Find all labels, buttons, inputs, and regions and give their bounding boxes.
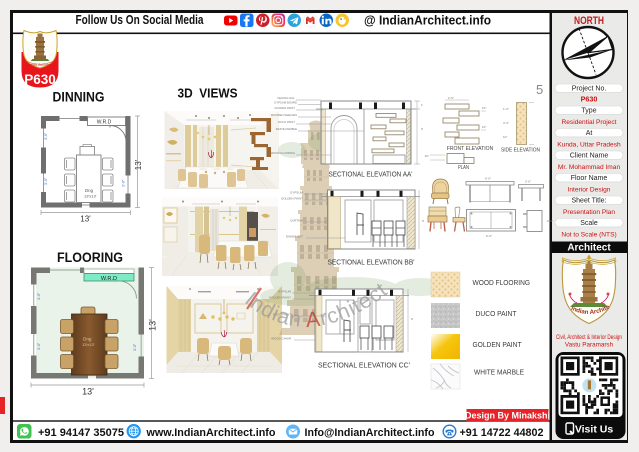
svg-text:NORTH: NORTH (574, 15, 604, 27)
svg-text:DUCO PAINT: DUCO PAINT (278, 120, 295, 124)
svg-text:WOOD CHAIR: WOOD CHAIR (271, 337, 292, 341)
svg-text:10": 10" (503, 135, 507, 139)
svg-text:PLAN: PLAN (458, 165, 469, 171)
svg-text:Indian Architect: Indian Architect (26, 62, 54, 67)
svg-text:CURTAIN: CURTAIN (290, 219, 303, 223)
svg-text:2'-6": 2'-6" (448, 96, 454, 100)
svg-text:Client Name: Client Name (570, 153, 609, 160)
svg-text:3'-0": 3'-0" (44, 132, 48, 140)
svg-text:2'-6": 2'-6" (547, 219, 553, 223)
svg-text:@ IndianArchitect.info: @ IndianArchitect.info (364, 14, 491, 28)
svg-text:Scale: Scale (580, 220, 598, 227)
svg-text:Civil, Architect & Interior De: Civil, Architect & Interior Design (556, 334, 622, 341)
svg-text:P630: P630 (24, 72, 56, 87)
svg-text:GYPSUM: GYPSUM (278, 290, 292, 294)
svg-text:W.R.D: W.R.D (101, 276, 117, 282)
svg-text:WHITE MARBLE: WHITE MARBLE (276, 127, 297, 131)
svg-text:SECTIONAL ELEVATION AA': SECTIONAL ELEVATION AA' (329, 170, 413, 179)
svg-text:GOLDEN PAINT: GOLDEN PAINT (281, 197, 303, 201)
svg-text:Follow Us On Social Media: Follow Us On Social Media (76, 13, 205, 27)
svg-text:DINING SET: DINING SET (286, 235, 303, 239)
svg-text:Design By Minakshi: Design By Minakshi (465, 410, 550, 420)
svg-text:3'-0": 3'-0" (44, 177, 48, 185)
svg-text:WHITE MARBLE: WHITE MARBLE (474, 368, 524, 377)
svg-text:P630: P630 (581, 95, 598, 104)
svg-text:Floor Name: Floor Name (571, 175, 608, 182)
svg-text:13': 13' (148, 319, 158, 331)
svg-text:www.IndianArchitect.info: www.IndianArchitect.info (146, 427, 276, 439)
svg-text:6'-0": 6'-0" (486, 234, 492, 238)
svg-text:10": 10" (425, 154, 429, 158)
svg-text:SECTIONAL ELEVATION CC': SECTIONAL ELEVATION CC' (318, 361, 411, 370)
svg-text:Interior Design: Interior Design (568, 186, 611, 193)
svg-text:13'x13': 13'x13' (82, 342, 95, 347)
svg-text:W.R.D: W.R.D (97, 120, 112, 126)
svg-text:WOODEN SHELVES: WOODEN SHELVES (271, 113, 298, 117)
svg-text:FLOORING: FLOORING (57, 250, 123, 265)
svg-text:SIDE ELEVATION: SIDE ELEVATION (501, 148, 540, 154)
svg-text:13': 13' (134, 159, 143, 170)
svg-text:Presentation Plan: Presentation Plan (563, 209, 615, 216)
svg-text:1'-0": 1'-0" (503, 107, 509, 111)
svg-text:At: At (586, 130, 593, 137)
svg-text:FRONT ELEVATION: FRONT ELEVATION (447, 146, 494, 152)
svg-text:Dng: Dng (83, 337, 92, 342)
svg-text:DINNING: DINNING (53, 90, 105, 105)
svg-text:3'-0": 3'-0" (122, 179, 126, 187)
svg-text:6'-0": 6'-0" (485, 177, 491, 181)
svg-text:DUCO PAINT: DUCO PAINT (476, 309, 518, 318)
svg-text:2'-6": 2'-6" (525, 180, 531, 184)
svg-text:CEILING HIG.: CEILING HIG. (277, 96, 295, 100)
svg-text:WOOD FLOORING: WOOD FLOORING (473, 278, 531, 287)
svg-text:3'-0": 3'-0" (37, 292, 41, 300)
svg-text:GYPSUM: GYPSUM (290, 191, 304, 195)
svg-text:GYPSUM BOARD: GYPSUM BOARD (274, 101, 297, 105)
svg-text:3D VIEWS: 3D VIEWS (178, 86, 238, 101)
svg-text:Kunda, Uttar Pradesh: Kunda, Uttar Pradesh (557, 141, 621, 148)
svg-text:Vastu Paramarsh: Vastu Paramarsh (565, 342, 614, 349)
svg-text:WOOD FLOORING: WOOD FLOORING (271, 151, 295, 155)
svg-text:+91 14722 44802: +91 14722 44802 (460, 427, 544, 439)
svg-text:Architect: Architect (567, 243, 611, 254)
svg-text:10": 10" (482, 106, 486, 110)
svg-text:13': 13' (82, 387, 94, 397)
svg-text:Not to Scale (NTS): Not to Scale (NTS) (561, 231, 616, 238)
svg-text:3'-0": 3'-0" (133, 343, 137, 351)
svg-text:Visit Us: Visit Us (575, 424, 613, 436)
svg-text:GOLDEN PAINT: GOLDEN PAINT (274, 106, 295, 110)
svg-text:Project No.: Project No. (572, 86, 607, 93)
svg-text:5: 5 (536, 82, 543, 97)
svg-text:+91 94147 35075: +91 94147 35075 (38, 427, 124, 439)
svg-text:13'x13': 13'x13' (84, 194, 97, 199)
svg-text:GOLDEN PAINT: GOLDEN PAINT (473, 340, 523, 349)
svg-text:Type: Type (581, 108, 596, 115)
svg-text:3'-0": 3'-0" (503, 121, 509, 125)
svg-text:3'-0": 3'-0" (37, 342, 41, 350)
svg-text:Mr. Mohammad Iman: Mr. Mohammad Iman (558, 164, 621, 171)
svg-text:10": 10" (482, 125, 486, 129)
svg-text:Info@IndianArchitect.info: Info@IndianArchitect.info (305, 427, 435, 439)
svg-text:Dng: Dng (85, 188, 94, 193)
svg-text:SECTIONAL ELEVATION BB': SECTIONAL ELEVATION BB' (328, 258, 415, 267)
svg-text:Residential Project: Residential Project (562, 119, 617, 126)
svg-text:Sheet Title:: Sheet Title: (571, 198, 606, 205)
svg-text:13': 13' (80, 215, 91, 224)
